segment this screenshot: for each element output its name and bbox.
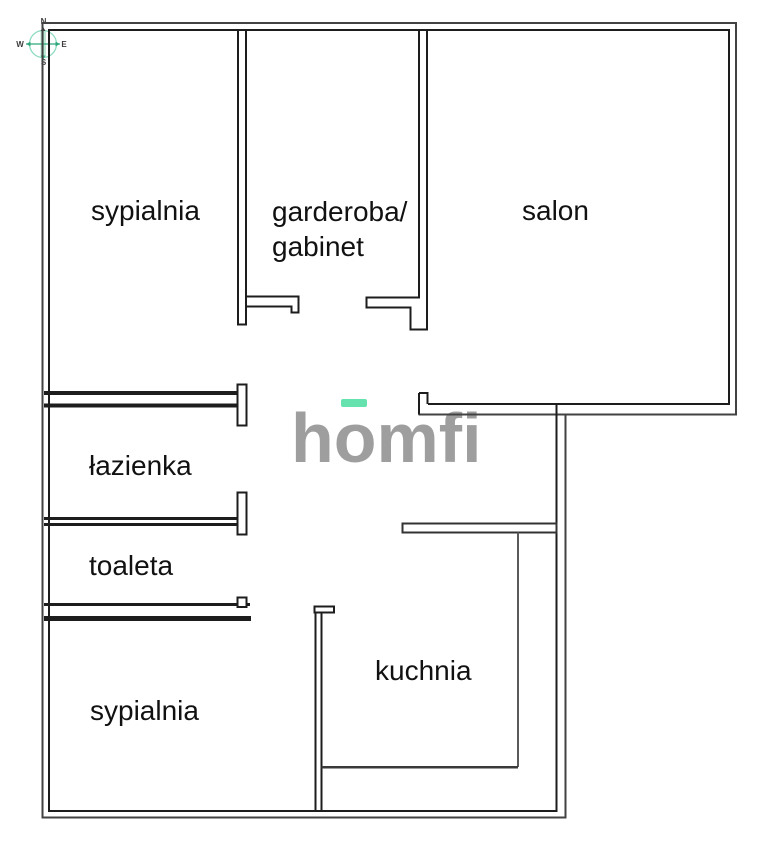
wall-sypialnia2-kuchnia [316,613,322,812]
floor-plan-walls: W E S N [0,0,777,853]
compass-west-arrow [26,42,31,47]
jamb-toaleta-door-top [238,493,247,535]
wall-sypialnia1-garderoba [238,30,246,325]
jamb-lazienka-door-top [238,385,247,426]
jamb-toaleta-door-bottom [238,598,247,608]
outer-wall-outline [43,23,737,818]
wall-kuchnia-top [403,524,557,533]
floor-plan: homfi W E S N [0,0,777,853]
inner-wall-outline [49,30,729,811]
jamb-sypialnia2-door [315,607,335,613]
wall-garderoba-salon [367,30,428,330]
compass-e-label: E [61,40,67,49]
compass-w-label: W [16,40,24,49]
garderoba-door-left-jamb [246,297,299,313]
compass-east-arrow [56,42,61,47]
salon-door-stub [419,393,428,415]
